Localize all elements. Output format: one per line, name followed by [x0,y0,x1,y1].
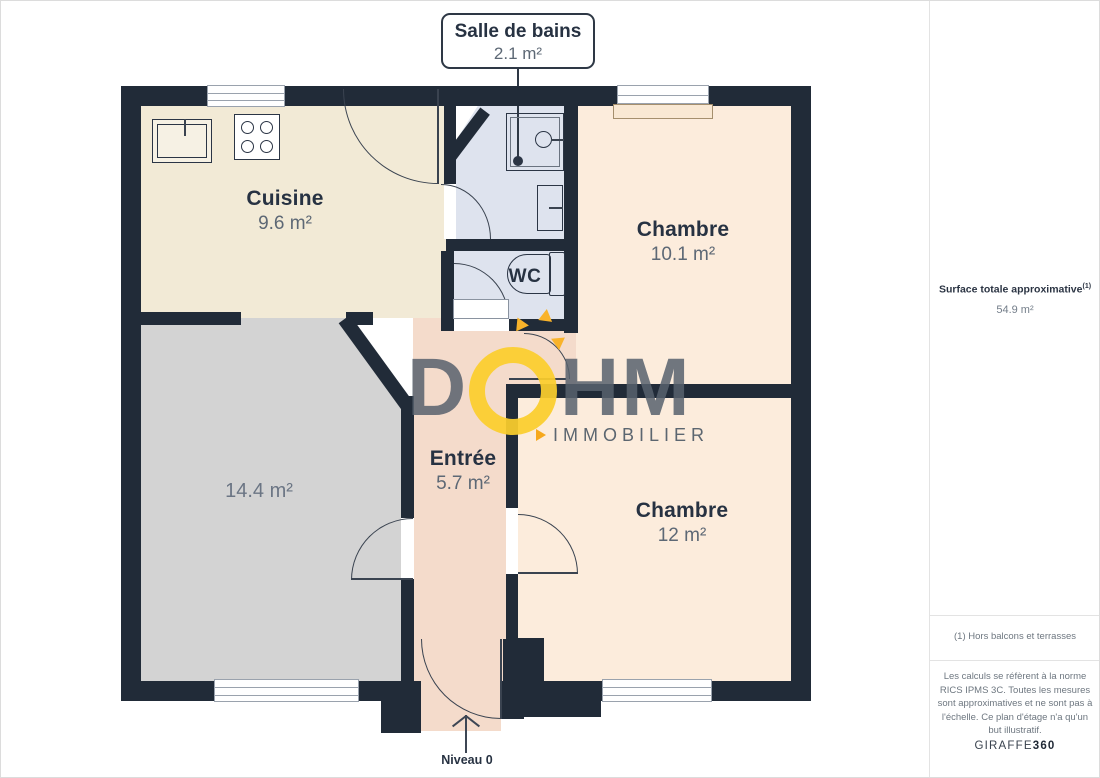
stove-burner-1 [241,121,254,134]
wc-name: WC [499,266,551,288]
sun-ray-icon [538,308,554,322]
entree-name: Entrée [393,447,533,471]
toilet-tank [549,252,565,296]
sidebar-title-superscript: (1) [1083,283,1092,290]
sidebar-total-area: 54.9 m² [929,304,1100,316]
logo-triangle-icon [536,429,546,441]
entree-corridor-floor [413,386,506,681]
wall-chambre-top-left [564,104,578,333]
chambre-bottom-door-leaf [518,572,578,574]
chambre-bottom-label: Chambre 12 m² [582,499,782,547]
logo-ring [469,347,557,435]
cuisine-area: 9.6 m² [185,213,385,235]
door-gap-chambre-bottom [506,508,518,574]
chambre-top-label: Chambre 10.1 m² [583,218,783,266]
entree-area: 5.7 m² [393,473,533,495]
stove-burner-4 [260,140,273,153]
wall-vestibule-left [405,681,421,733]
sidebar-divider [929,1,930,778]
wall-left [121,86,141,701]
kitchen-window [207,85,285,107]
callout-title: Salle de bains [443,21,593,43]
stove-burner-2 [260,121,273,134]
wall-vestibule-left-foot [381,701,406,733]
wall-bath-wc [446,239,571,251]
giraffe360-logo: GIRAFFE360 [929,740,1100,752]
cuisine-label: Cuisine 9.6 m² [185,187,385,235]
sidebar-footnote: (1) Hors balcons et terrasses [933,631,1097,642]
wall-vestibule-right-foot [501,681,524,719]
wall-living-right-lower [401,579,414,681]
living-label: 14.4 m² [189,478,329,503]
stove-burner-3 [241,140,254,153]
chambre-top-name: Chambre [583,218,783,242]
door-gap-wc [454,319,509,331]
sidebar-rule [929,660,1100,661]
kitchen-tap [184,119,186,136]
sidebar-total-title: Surface totale approximative(1) [929,283,1100,296]
sidebar-total-title-text: Surface totale approximative [939,284,1083,296]
floorplan-page: Cuisine 9.6 m² Chambre 10.1 m² Chambre 1… [0,0,1100,778]
sidebar-rule [929,615,1100,616]
chambre-top-area: 10.1 m² [583,244,783,266]
chambre-top-window [617,85,709,104]
wall-kitchen-living [141,312,241,325]
living-door-leaf [351,578,413,580]
logo-subtitle: IMMOBILIER [553,425,709,446]
stove [234,114,280,160]
shower-drain [513,156,523,166]
chambre-bottom-name: Chambre [582,499,782,523]
entry-arrow-icon [465,715,467,753]
chambre-top-window-sill [613,104,713,119]
chambre-bottom-area: 12 m² [582,525,782,547]
salle-de-bains-callout: Salle de bains 2.1 m² [441,13,595,69]
giraffe360-prefix: GIRAFFE [974,740,1032,752]
wall-chambre-corner-chunk [506,638,544,681]
wc-basin [453,299,509,319]
level-label: Niveau 0 [417,753,517,767]
giraffe360-suffix: 360 [1033,740,1056,752]
wall-wc-bottom-left [441,319,454,331]
living-area: 14.4 m² [189,480,329,503]
living-window [214,679,359,702]
bath-sink-line [549,207,563,209]
kitchen-door-leaf [437,89,439,184]
wc-label: WC [499,266,551,288]
sidebar-disclaimer: Les calculs se réfèrent à la norme RICS … [937,670,1093,738]
wall-entrance-step [524,701,601,717]
entree-label: Entrée 5.7 m² [393,447,533,495]
callout-area: 2.1 m² [443,44,593,64]
chambre-bottom-window [602,679,712,702]
front-door-leaf [500,639,502,719]
shower-head [535,131,552,148]
shower-head-line [551,139,564,141]
kitchen-sink-basin [157,124,207,158]
cuisine-name: Cuisine [185,187,385,211]
